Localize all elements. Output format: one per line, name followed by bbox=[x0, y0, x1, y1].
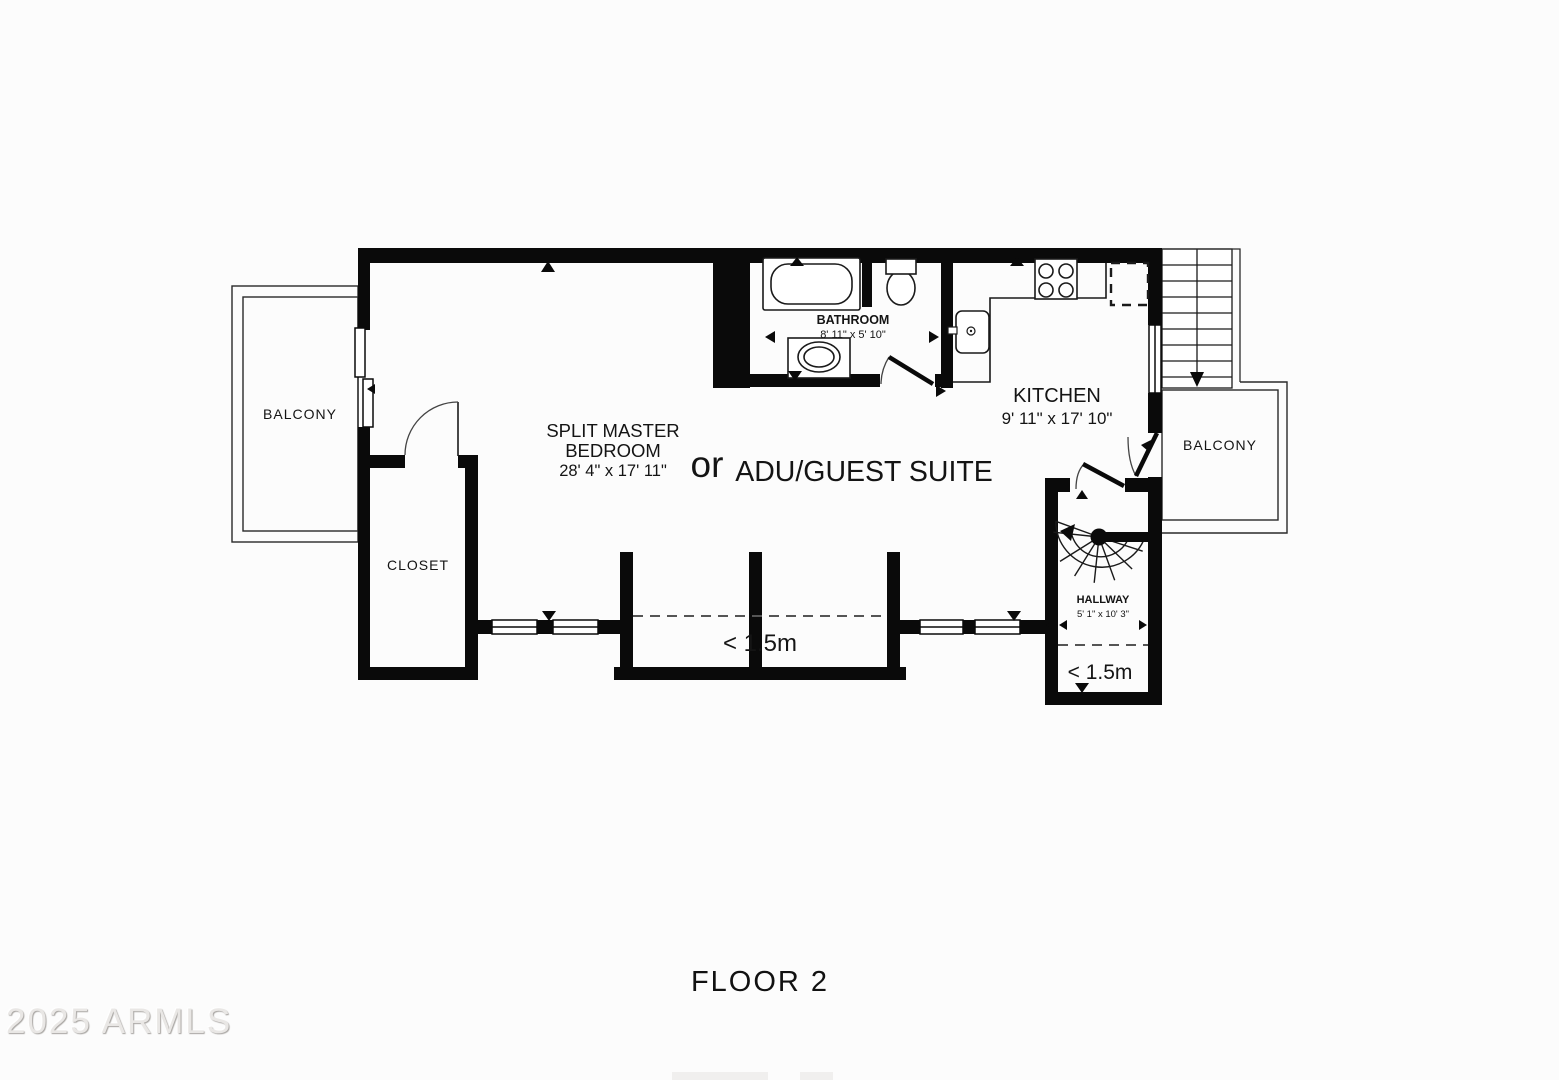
floor-plan-svg: BALCONY BALCONY CLOSET SPLIT MASTER BEDR… bbox=[0, 0, 1559, 1080]
wall bbox=[1045, 478, 1058, 705]
wall bbox=[897, 620, 920, 634]
wall bbox=[713, 248, 750, 388]
wall bbox=[935, 374, 953, 387]
wall bbox=[620, 552, 633, 680]
bay-clearance-note: < 1.5m bbox=[723, 630, 797, 657]
window bbox=[1149, 325, 1161, 393]
door-closet bbox=[405, 402, 458, 456]
balcony-right bbox=[1155, 382, 1287, 533]
balcony-left-label: BALCONY bbox=[263, 406, 337, 422]
wall bbox=[1045, 478, 1070, 492]
marker-arrow-icon bbox=[765, 331, 775, 343]
marker-arrow-icon bbox=[1059, 620, 1067, 630]
wall bbox=[1148, 248, 1162, 325]
floor-title: FLOOR 2 bbox=[660, 966, 860, 999]
kitchen-dimensions: 9' 11" x 17' 10" bbox=[1002, 409, 1113, 428]
spiral-stairs-icon bbox=[1053, 521, 1148, 583]
marker-arrow-icon bbox=[1139, 620, 1147, 630]
balcony-right-label: BALCONY bbox=[1183, 437, 1257, 453]
hallway-dimensions: 5' 1" x 10' 3" bbox=[1077, 609, 1129, 620]
wall bbox=[1125, 478, 1162, 492]
wall bbox=[887, 552, 900, 680]
marker-arrow-icon bbox=[1075, 683, 1089, 693]
window bbox=[492, 620, 537, 634]
wall bbox=[358, 248, 370, 330]
bedroom-label-line1: SPLIT MASTER bbox=[546, 420, 679, 441]
wall bbox=[963, 620, 975, 634]
closet-label: CLOSET bbox=[387, 557, 449, 573]
kitchen-sink-icon bbox=[948, 311, 989, 353]
wall bbox=[537, 620, 553, 634]
bathroom-dimensions: 8' 11" x 5' 10" bbox=[820, 329, 886, 341]
bedroom-dimensions: 28' 4" x 17' 11" bbox=[559, 462, 667, 480]
bottom-edge-artifact bbox=[672, 1072, 768, 1080]
wall bbox=[358, 455, 405, 468]
bedroom-label-line2: BEDROOM bbox=[565, 440, 661, 461]
window bbox=[975, 620, 1020, 634]
kitchen-label: KITCHEN bbox=[1013, 385, 1101, 407]
wall bbox=[614, 667, 906, 680]
stairs-icon bbox=[1162, 249, 1240, 388]
window bbox=[920, 620, 963, 634]
bedroom-alt-label: ADU/GUEST SUITE bbox=[735, 456, 993, 488]
bathroom-label: BATHROOM bbox=[817, 313, 890, 327]
door-arrow-icon bbox=[1076, 490, 1088, 499]
door-balcony-right bbox=[1128, 433, 1157, 476]
wall bbox=[1148, 393, 1162, 433]
kitchen-fixtures bbox=[948, 259, 1148, 382]
bottom-edge-artifact bbox=[800, 1072, 833, 1080]
bedroom-or-label: or bbox=[691, 444, 724, 485]
wall bbox=[478, 620, 492, 634]
wall bbox=[1148, 477, 1162, 705]
wall bbox=[465, 455, 478, 680]
floor-plan: BALCONY BALCONY CLOSET SPLIT MASTER BEDR… bbox=[0, 0, 1559, 1080]
hallway-label: HALLWAY bbox=[1077, 594, 1130, 606]
wall bbox=[862, 248, 872, 307]
refrigerator-icon bbox=[1111, 263, 1148, 305]
window bbox=[553, 620, 598, 634]
watermark: 2025 ARMLS bbox=[6, 1002, 232, 1042]
wall bbox=[358, 667, 478, 680]
door-bathroom bbox=[881, 357, 933, 384]
bathtub-icon bbox=[763, 258, 860, 310]
wall bbox=[1045, 692, 1162, 705]
toilet-icon bbox=[886, 259, 916, 305]
hallway-clearance-note: < 1.5m bbox=[1068, 661, 1133, 684]
marker-arrow-icon bbox=[929, 331, 939, 343]
door-hallway bbox=[1076, 464, 1124, 499]
stove-icon bbox=[1035, 259, 1077, 299]
wall bbox=[941, 248, 953, 388]
